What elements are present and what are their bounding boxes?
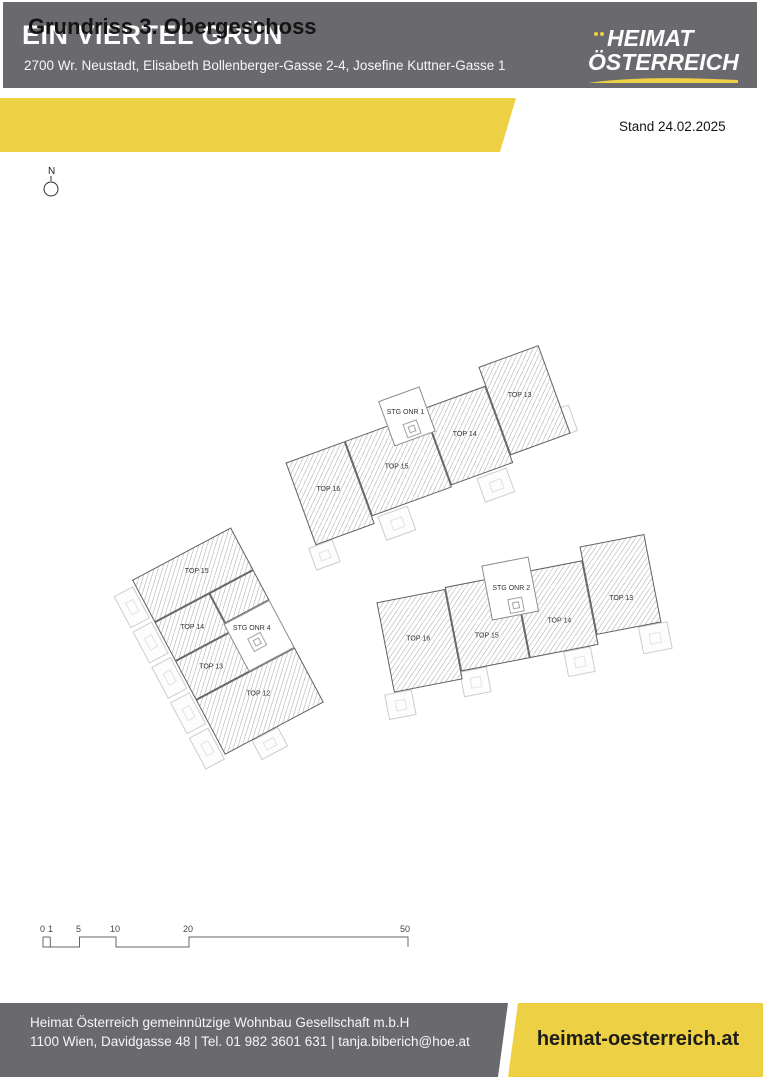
logo-umlaut-dot-icon bbox=[594, 32, 598, 36]
unit-label: TOP 15 bbox=[385, 463, 409, 470]
scale-tick-label: 5 bbox=[76, 924, 81, 934]
floor-title: Grundriss 3. Obergeschoss bbox=[28, 0, 317, 54]
floor-banner bbox=[0, 98, 516, 152]
unit-label: TOP 15 bbox=[185, 568, 209, 575]
unit-label: TOP 16 bbox=[406, 636, 430, 643]
logo-umlaut-dot-icon bbox=[600, 32, 604, 36]
stand-date: Stand 24.02.2025 bbox=[619, 119, 726, 134]
logo-heimat-text: HEIMAT bbox=[607, 25, 693, 52]
unit-label: TOP 14 bbox=[180, 624, 204, 631]
footer-website-link[interactable]: heimat-oesterreich.at bbox=[518, 1028, 758, 1051]
unit-label: TOP 14 bbox=[547, 617, 571, 624]
unit-label: TOP 12 bbox=[246, 691, 270, 698]
scale-tick-label: 1 bbox=[48, 924, 53, 934]
stairs-icon bbox=[507, 596, 525, 614]
scale-tick-label: 20 bbox=[183, 924, 193, 934]
balcony bbox=[563, 646, 595, 677]
unit-label: TOP 14 bbox=[453, 431, 477, 438]
scale-tick-label: 50 bbox=[400, 924, 410, 934]
balcony bbox=[638, 621, 673, 654]
project-address: 2700 Wr. Neustadt, Elisabeth Bollenberge… bbox=[24, 58, 506, 73]
footer-company: Heimat Österreich gemeinnützige Wohnbau … bbox=[30, 1015, 409, 1030]
scale-tick-label: 0 bbox=[40, 924, 45, 934]
scale-bar bbox=[38, 934, 418, 950]
unit-label: TOP 13 bbox=[199, 664, 223, 671]
balcony bbox=[308, 539, 341, 570]
staircase-label: STG ONR 1 bbox=[387, 409, 425, 416]
staircase-label: STG ONR 4 bbox=[233, 625, 271, 632]
scale-tick-label: 10 bbox=[110, 924, 120, 934]
staircase-label: STG ONR 2 bbox=[492, 585, 530, 592]
compass-label: N bbox=[48, 166, 55, 177]
balcony bbox=[384, 689, 416, 720]
unit-label: TOP 13 bbox=[609, 595, 633, 602]
logo-oesterreich-text: ÖSTERREICH bbox=[588, 49, 739, 76]
logo-swoosh-icon bbox=[588, 75, 738, 84]
footer-contact: 1100 Wien, Davidgasse 48 | Tel. 01 982 3… bbox=[30, 1034, 470, 1049]
unit-label: TOP 15 bbox=[475, 632, 499, 639]
unit-label: TOP 13 bbox=[508, 392, 532, 399]
balcony bbox=[459, 666, 491, 697]
unit-label: TOP 16 bbox=[316, 486, 340, 493]
north-arrow-icon: N bbox=[40, 164, 64, 200]
